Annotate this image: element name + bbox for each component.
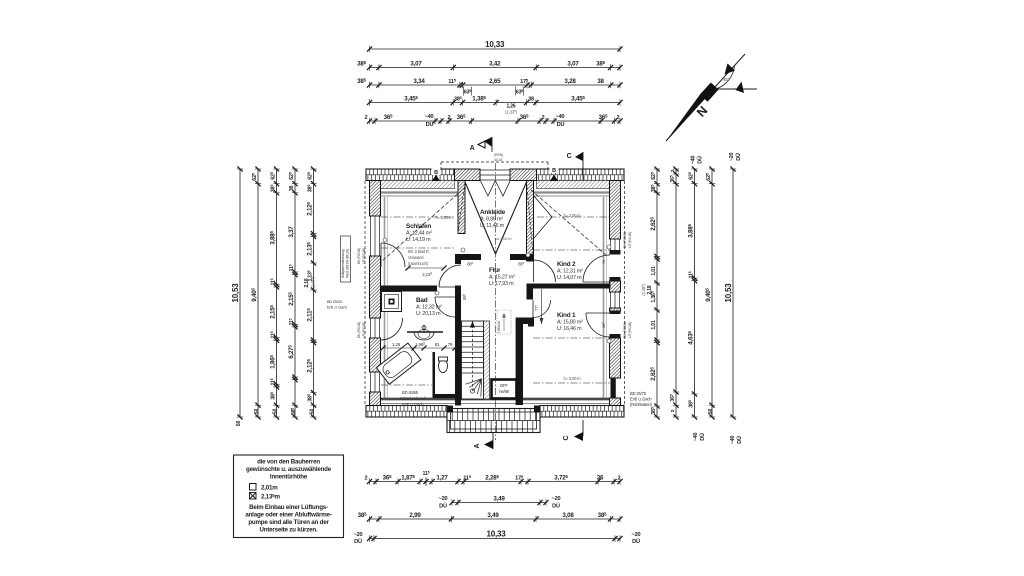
svg-text:Schlafen: Schlafen (406, 223, 431, 230)
svg-text:3,37: 3,37 (288, 226, 295, 238)
svg-text:~40: ~40 (693, 433, 699, 442)
svg-text:(Rohrkasten): (Rohrkasten) (630, 402, 653, 407)
svg-text:Kind 2: Kind 2 (557, 261, 576, 268)
svg-text:~20: ~20 (632, 532, 641, 538)
svg-text:(raumhoch): (raumhoch) (408, 261, 429, 266)
svg-text:10,33: 10,33 (486, 529, 506, 538)
svg-text:DFF: DFF (500, 383, 508, 388)
svg-text:1,26: 1,26 (392, 342, 401, 347)
svg-text:Vorwand: Vorwand (408, 255, 424, 260)
svg-text:DÜ: DÜ (697, 156, 704, 164)
svg-text:3,34: 3,34 (413, 78, 425, 85)
svg-text:C: C (563, 435, 570, 440)
svg-text:50: 50 (708, 409, 714, 415)
svg-text:Entl. ü. Dach: Entl. ü. Dach (402, 402, 424, 407)
svg-text:~20: ~20 (729, 153, 735, 162)
svg-text:DÜ: DÜ (632, 538, 640, 545)
svg-text:3,08: 3,08 (562, 512, 574, 519)
svg-text:Beim Einbau einer Lüftungs-: Beim Einbau einer Lüftungs- (249, 504, 328, 511)
svg-text:3,42: 3,42 (489, 61, 501, 68)
svg-text:he/98: he/98 (499, 389, 509, 394)
svg-text:(RSN): (RSN) (494, 153, 503, 157)
svg-text:38: 38 (597, 78, 604, 85)
svg-text:A: 12,31 m²: A: 12,31 m² (557, 269, 583, 275)
svg-text:2: 2 (542, 115, 545, 121)
svg-text:pumpe sind alle Türen an der: pumpe sind alle Türen an der (248, 519, 329, 526)
svg-text:Entl. ü. Dach: Entl. ü. Dach (630, 397, 652, 402)
svg-text:3,49: 3,49 (493, 496, 505, 503)
svg-text:76: 76 (448, 342, 453, 347)
svg-text:h= 2,00 m: h= 2,00 m (564, 376, 582, 381)
svg-text:2: 2 (617, 115, 620, 121)
svg-text:3,49: 3,49 (487, 512, 499, 519)
svg-text:B: B (552, 168, 556, 174)
svg-text:~40: ~40 (730, 436, 736, 445)
svg-text:~40: ~40 (691, 156, 697, 165)
svg-text:DK (RC1N): DK (RC1N) (357, 248, 361, 264)
svg-text:45°: 45° (723, 77, 729, 82)
svg-text:DK (RC1N): DK (RC1N) (357, 322, 361, 338)
svg-text:1,01: 1,01 (651, 320, 657, 330)
svg-text:Unterseite zu kürzen.: Unterseite zu kürzen. (259, 527, 318, 534)
svg-text:U: 14,19 m: U: 14,19 m (406, 237, 431, 243)
svg-text:Flur: Flur (489, 267, 501, 274)
svg-text:gewünschte u. auszuwählende: gewünschte u. auszuwählende (246, 466, 332, 473)
svg-text:UT (RC4B): UT (RC4B) (362, 322, 366, 338)
svg-text:h= 2,00 m: h= 2,00 m (436, 215, 454, 220)
svg-text:2,65: 2,65 (489, 78, 501, 85)
svg-text:~20: ~20 (439, 496, 448, 502)
svg-text:BD 40/65: BD 40/65 (402, 390, 419, 395)
svg-text:ca. 2,00 m: ca. 2,00 m (495, 236, 513, 241)
svg-text:U: 20,13 m: U: 20,13 m (416, 311, 441, 317)
svg-text:DÜ: DÜ (552, 502, 560, 509)
svg-text:3,07: 3,07 (567, 61, 579, 68)
svg-text:UT (RC4B): UT (RC4B) (362, 248, 366, 264)
svg-text:2: 2 (365, 115, 368, 121)
svg-text:2,99: 2,99 (409, 512, 421, 519)
svg-text:(2,495): (2,495) (640, 284, 646, 296)
svg-text:50: 50 (310, 409, 316, 415)
svg-text:Innentürhöhe: Innentürhöhe (270, 474, 308, 481)
svg-text:3,07: 3,07 (410, 61, 422, 68)
svg-text:10,53: 10,53 (231, 283, 240, 303)
svg-text:38: 38 (528, 97, 534, 103)
svg-text:DÜ: DÜ (557, 121, 565, 128)
svg-text:50: 50 (273, 409, 279, 415)
svg-text:A: A (470, 145, 475, 152)
svg-text:Luftraum: Luftraum (497, 321, 501, 333)
svg-text:A: 15,27 m²: A: 15,27 m² (489, 275, 515, 281)
svg-text:DK (RC1N): DK (RC1N) (623, 322, 627, 338)
svg-text:50: 50 (254, 409, 260, 415)
svg-text:50: 50 (236, 421, 242, 427)
svg-text:Kind 1: Kind 1 (557, 312, 576, 319)
svg-text:DÜ: DÜ (439, 502, 447, 509)
svg-text:2: 2 (365, 476, 368, 482)
svg-text:Brl. 2 Bad R: Brl. 2 Bad R (408, 249, 429, 254)
svg-text:C: C (567, 153, 572, 160)
svg-text:(1,335): (1,335) (505, 109, 518, 115)
svg-text:A: 12,44 m²: A: 12,44 m² (406, 231, 432, 237)
svg-text:DÜ: DÜ (736, 436, 743, 444)
svg-text:3,28: 3,28 (564, 78, 576, 85)
svg-text:2: 2 (618, 476, 621, 482)
svg-text:~20: ~20 (552, 496, 561, 502)
svg-text:UT (RC4B): UT (RC4B) (628, 322, 632, 338)
svg-text:10,33: 10,33 (485, 40, 505, 49)
svg-text:38: 38 (289, 186, 295, 192)
svg-text:BD 25/75: BD 25/75 (630, 391, 647, 396)
svg-text:U: 11,46 m: U: 11,46 m (480, 223, 505, 229)
svg-text:U: 17,93 m: U: 17,93 m (489, 281, 514, 287)
svg-text:36: 36 (597, 475, 604, 482)
svg-text:DÜ: DÜ (699, 433, 706, 441)
svg-text:A: 12,32 m²: A: 12,32 m² (416, 305, 442, 311)
svg-text:U: 14,07 m: U: 14,07 m (557, 275, 582, 281)
svg-text:BD 25/25: BD 25/25 (327, 299, 342, 304)
svg-text:die von den Bauherren: die von den Bauherren (257, 459, 320, 466)
svg-text:~40: ~40 (425, 114, 434, 120)
svg-text:A: A (474, 443, 481, 448)
svg-text:2,135m: 2,135m (261, 493, 280, 501)
svg-text:Wäscheabwurf: Wäscheabwurf (400, 396, 426, 401)
svg-text:UT (RC4B): UT (RC4B) (628, 232, 632, 248)
svg-text:DÜ: DÜ (354, 538, 362, 545)
svg-text:(2,495): (2,495) (310, 277, 316, 289)
svg-text:~20: ~20 (354, 532, 363, 538)
svg-text:1,27: 1,27 (436, 475, 448, 482)
svg-text:2,01m: 2,01m (261, 485, 278, 492)
svg-text:DÜ: DÜ (735, 153, 742, 161)
svg-text:A: 8,86 m²: A: 8,86 m² (480, 217, 503, 223)
svg-text:Ankleide: Ankleide (480, 209, 506, 216)
svg-text:anlage oder einer Abluftwärme-: anlage oder einer Abluftwärme- (245, 512, 331, 519)
svg-text:10,53: 10,53 (724, 283, 733, 303)
svg-text:2,18: 2,18 (647, 285, 653, 294)
svg-text:DÜ: DÜ (426, 121, 434, 128)
svg-text:30-18: 30-18 (494, 158, 502, 162)
svg-text:WLG 035 DN (RC1N): WLG 035 DN (RC1N) (345, 249, 349, 278)
svg-text:A: 15,80 m²: A: 15,80 m² (557, 320, 583, 326)
svg-text:1,01: 1,01 (651, 266, 657, 276)
svg-text:81: 81 (435, 342, 440, 347)
svg-text:~40: ~40 (556, 114, 565, 120)
svg-text:Entl. ü. Dach: Entl. ü. Dach (327, 305, 347, 310)
svg-text:Bad: Bad (416, 297, 428, 304)
svg-text:2: 2 (448, 115, 451, 121)
svg-text:DK (RC1N): DK (RC1N) (623, 232, 627, 248)
svg-text:U: 16,46 m: U: 16,46 m (557, 326, 582, 332)
